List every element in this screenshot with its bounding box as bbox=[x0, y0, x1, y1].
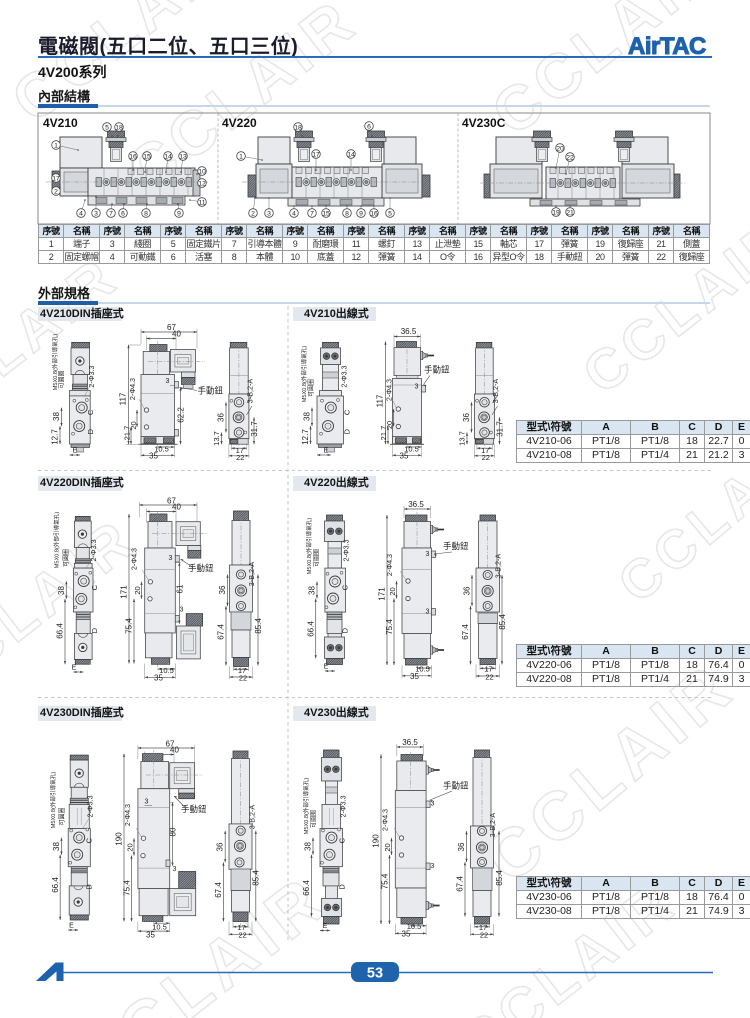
svg-text:可圓圈: 可圓圈 bbox=[311, 810, 318, 828]
svg-text:3: 3 bbox=[145, 799, 149, 806]
svg-text:66.4: 66.4 bbox=[306, 621, 315, 637]
svg-text:80: 80 bbox=[169, 827, 178, 836]
svg-text:2-Φ4.3: 2-Φ4.3 bbox=[385, 379, 394, 401]
svg-text:62.2: 62.2 bbox=[177, 407, 186, 423]
svg-text:85.4: 85.4 bbox=[254, 618, 263, 634]
svg-text:2-Φ3.3: 2-Φ3.3 bbox=[339, 795, 348, 817]
svg-text:手動鈕: 手動鈕 bbox=[443, 781, 469, 791]
svg-text:2-Φ4.3: 2-Φ4.3 bbox=[385, 554, 394, 576]
svg-text:36: 36 bbox=[462, 413, 471, 422]
svg-text:E: E bbox=[72, 665, 77, 672]
svg-text:35: 35 bbox=[149, 452, 158, 461]
svg-text:40: 40 bbox=[172, 503, 181, 512]
svg-text:M5X0.8(外部引導氣孔): M5X0.8(外部引導氣孔) bbox=[51, 334, 59, 391]
svg-text:3-B,2-A: 3-B,2-A bbox=[488, 813, 497, 838]
svg-text:61: 61 bbox=[176, 584, 185, 593]
svg-text:E: E bbox=[323, 923, 328, 930]
svg-text:75.4: 75.4 bbox=[385, 619, 394, 635]
svg-text:36: 36 bbox=[216, 842, 225, 851]
svg-text:36: 36 bbox=[463, 586, 472, 595]
svg-text:75.4: 75.4 bbox=[123, 880, 132, 896]
svg-text:E: E bbox=[69, 923, 74, 930]
svg-text:2-Φ3.3: 2-Φ3.3 bbox=[89, 539, 98, 561]
svg-text:2-Φ4.3: 2-Φ4.3 bbox=[130, 548, 139, 570]
svg-text:E: E bbox=[73, 448, 78, 455]
svg-text:12.7: 12.7 bbox=[301, 429, 310, 445]
svg-text:3: 3 bbox=[431, 801, 435, 808]
svg-text:22: 22 bbox=[485, 672, 493, 681]
svg-text:38: 38 bbox=[52, 842, 61, 851]
svg-text:可圓圈: 可圓圈 bbox=[308, 379, 315, 397]
svg-text:M5X0.8(外部引導氣孔): M5X0.8(外部引導氣孔) bbox=[300, 346, 308, 403]
svg-text:手動鈕: 手動鈕 bbox=[443, 541, 469, 551]
svg-text:22: 22 bbox=[480, 930, 488, 939]
svg-text:C: C bbox=[86, 409, 95, 415]
svg-text:3: 3 bbox=[426, 609, 430, 616]
svg-text:M5X0.8(外部引導氣孔): M5X0.8(外部引導氣孔) bbox=[302, 778, 310, 835]
svg-text:35: 35 bbox=[400, 452, 409, 461]
svg-text:2-Φ3.3: 2-Φ3.3 bbox=[340, 365, 349, 387]
svg-text:38: 38 bbox=[308, 586, 317, 595]
svg-text:36: 36 bbox=[457, 842, 466, 851]
svg-text:3: 3 bbox=[426, 551, 430, 558]
svg-text:66.4: 66.4 bbox=[302, 880, 311, 896]
svg-text:D: D bbox=[341, 627, 350, 633]
svg-text:2-Φ4.3: 2-Φ4.3 bbox=[381, 809, 390, 831]
svg-text:75.4: 75.4 bbox=[381, 873, 390, 889]
svg-text:手動鈕: 手動鈕 bbox=[181, 804, 207, 814]
svg-text:3-B,2-A: 3-B,2-A bbox=[491, 379, 500, 404]
svg-text:35: 35 bbox=[154, 674, 163, 683]
svg-text:20: 20 bbox=[126, 843, 135, 851]
svg-text:20: 20 bbox=[388, 587, 397, 595]
svg-text:3: 3 bbox=[173, 866, 177, 873]
svg-text:35: 35 bbox=[146, 930, 155, 939]
svg-text:117: 117 bbox=[119, 392, 128, 405]
svg-text:E: E bbox=[324, 664, 329, 671]
svg-text:85.4: 85.4 bbox=[498, 614, 507, 630]
svg-text:可圓圈: 可圓圈 bbox=[59, 807, 66, 825]
svg-text:C: C bbox=[338, 837, 347, 843]
svg-text:85.4: 85.4 bbox=[495, 870, 504, 886]
svg-text:2-Φ3.3: 2-Φ3.3 bbox=[342, 539, 351, 561]
svg-text:M5X0.8(外部引導氣孔): M5X0.8(外部引導氣孔) bbox=[49, 772, 57, 829]
svg-text:3: 3 bbox=[169, 555, 173, 562]
svg-text:31.7: 31.7 bbox=[250, 421, 259, 437]
svg-text:3: 3 bbox=[166, 378, 170, 385]
svg-text:67.4: 67.4 bbox=[456, 876, 465, 892]
svg-text:190: 190 bbox=[115, 832, 124, 846]
svg-text:3: 3 bbox=[431, 863, 435, 870]
svg-text:66.4: 66.4 bbox=[56, 623, 65, 639]
svg-text:12.7: 12.7 bbox=[51, 429, 60, 445]
svg-text:M5X0.8(外部引導氣孔): M5X0.8(外部引導氣孔) bbox=[305, 518, 313, 575]
svg-text:35: 35 bbox=[402, 930, 411, 939]
svg-text:67.4: 67.4 bbox=[217, 624, 226, 640]
svg-text:C: C bbox=[90, 584, 99, 590]
svg-text:C: C bbox=[343, 409, 352, 415]
svg-text:手動鈕: 手動鈕 bbox=[424, 365, 450, 375]
svg-text:40: 40 bbox=[170, 746, 179, 755]
svg-text:M5X0.8(外部引導氣孔): M5X0.8(外部引導氣孔) bbox=[53, 512, 61, 569]
svg-text:3-B,2-A: 3-B,2-A bbox=[246, 379, 255, 404]
svg-text:36.5: 36.5 bbox=[402, 738, 418, 747]
svg-text:67.4: 67.4 bbox=[461, 624, 470, 640]
svg-text:D: D bbox=[84, 884, 93, 890]
svg-text:22: 22 bbox=[482, 453, 490, 462]
svg-text:E: E bbox=[324, 448, 329, 455]
svg-text:手動鈕: 手動鈕 bbox=[188, 563, 214, 573]
svg-text:38: 38 bbox=[303, 412, 312, 421]
svg-text:36.5: 36.5 bbox=[401, 327, 417, 336]
svg-text:20: 20 bbox=[383, 843, 392, 851]
svg-text:36: 36 bbox=[218, 585, 227, 594]
svg-text:36: 36 bbox=[217, 413, 226, 422]
svg-text:38: 38 bbox=[304, 842, 313, 851]
svg-text:22: 22 bbox=[238, 930, 246, 939]
svg-text:22: 22 bbox=[239, 673, 247, 682]
svg-text:可圓圈: 可圓圈 bbox=[314, 549, 321, 567]
svg-text:67.4: 67.4 bbox=[214, 882, 223, 898]
svg-text:2-Φ4.3: 2-Φ4.3 bbox=[123, 804, 132, 826]
svg-text:3: 3 bbox=[180, 607, 184, 614]
svg-text:117: 117 bbox=[376, 394, 385, 407]
svg-text:3-B,2-A: 3-B,2-A bbox=[247, 562, 256, 587]
svg-text:D: D bbox=[86, 428, 95, 434]
svg-text:40: 40 bbox=[172, 330, 181, 339]
svg-text:21.7: 21.7 bbox=[123, 426, 132, 441]
svg-text:171: 171 bbox=[378, 587, 387, 601]
svg-text:2-Φ3.3: 2-Φ3.3 bbox=[87, 365, 96, 387]
svg-text:2-Φ4.3: 2-Φ4.3 bbox=[128, 378, 137, 400]
svg-text:22: 22 bbox=[236, 453, 244, 462]
svg-text:D: D bbox=[338, 884, 347, 890]
svg-text:21.7: 21.7 bbox=[379, 426, 388, 441]
svg-text:手動鈕: 手動鈕 bbox=[198, 386, 224, 396]
svg-text:可圓圈: 可圓圈 bbox=[63, 549, 70, 567]
svg-text:13.7: 13.7 bbox=[458, 431, 467, 446]
svg-text:3-B,2-A: 3-B,2-A bbox=[494, 554, 503, 579]
svg-text:36.5: 36.5 bbox=[408, 500, 424, 509]
svg-text:38: 38 bbox=[52, 412, 61, 421]
svg-text:13.7: 13.7 bbox=[212, 431, 221, 446]
svg-text:38: 38 bbox=[57, 586, 66, 595]
svg-text:75.4: 75.4 bbox=[125, 618, 134, 634]
svg-text:3: 3 bbox=[415, 384, 419, 391]
svg-text:C: C bbox=[341, 584, 350, 590]
svg-text:D: D bbox=[343, 428, 352, 434]
svg-text:3-B,2-A: 3-B,2-A bbox=[247, 805, 256, 830]
svg-text:2-Φ3.3: 2-Φ3.3 bbox=[85, 795, 94, 817]
svg-text:31.7: 31.7 bbox=[496, 421, 505, 437]
svg-text:171: 171 bbox=[120, 585, 129, 599]
svg-text:可圓圈: 可圓圈 bbox=[59, 370, 66, 388]
svg-text:D: D bbox=[90, 627, 99, 633]
svg-text:C: C bbox=[84, 837, 93, 843]
svg-text:85.4: 85.4 bbox=[252, 870, 261, 886]
svg-text:190: 190 bbox=[372, 834, 381, 848]
svg-text:66.4: 66.4 bbox=[51, 877, 60, 893]
svg-text:20: 20 bbox=[133, 586, 142, 594]
svg-text:35: 35 bbox=[410, 672, 419, 681]
